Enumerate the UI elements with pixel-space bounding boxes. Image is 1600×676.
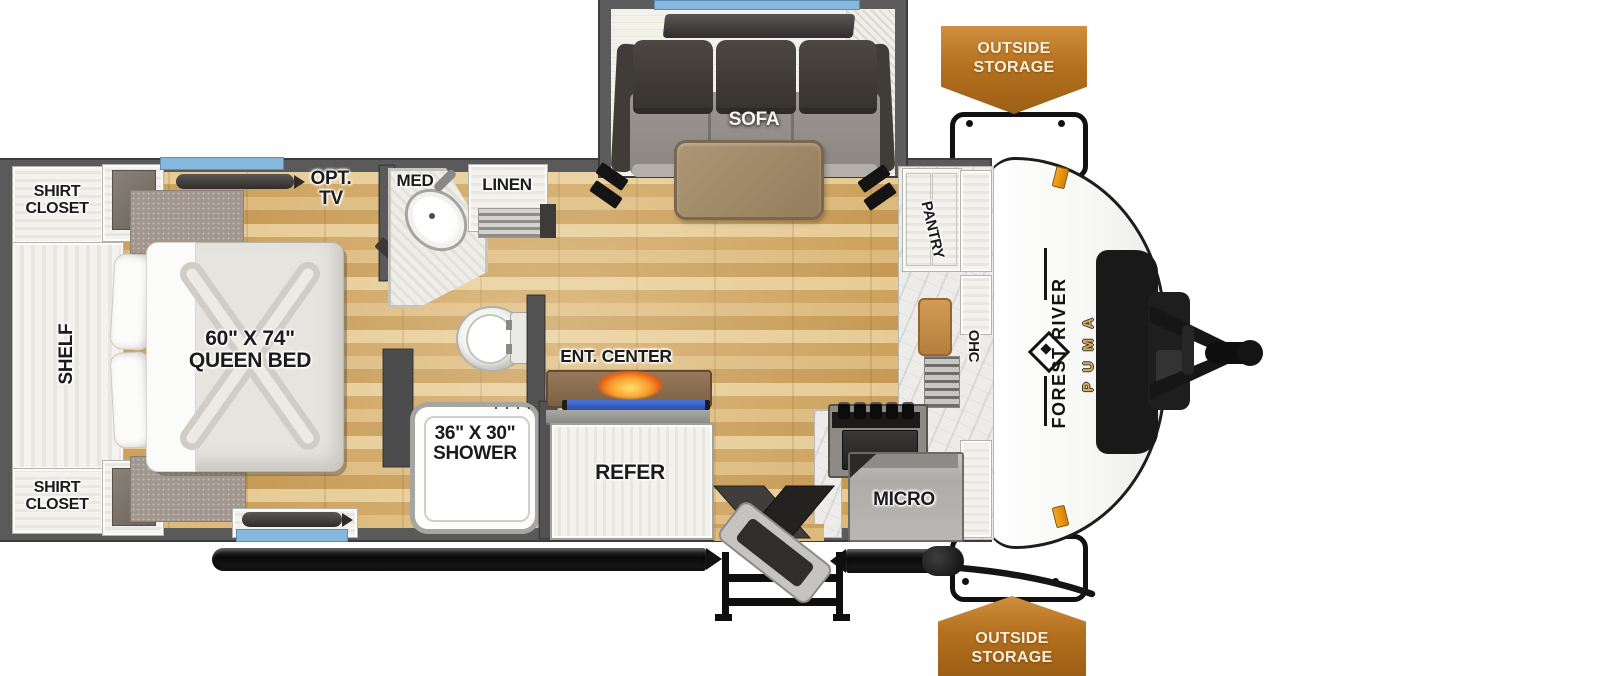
queen-bed-label: 60" X 74" QUEEN BED bbox=[158, 328, 342, 373]
brand-forest-river: FOREST RIVER bbox=[1049, 228, 1071, 478]
stove-burner-knob bbox=[870, 402, 882, 419]
shower-curtain-hooks bbox=[490, 402, 536, 414]
stove-burner-knob bbox=[838, 402, 850, 419]
sofa-back-cushion bbox=[799, 40, 877, 114]
tv-shelf bbox=[663, 14, 856, 38]
ent-center-tv bbox=[562, 400, 710, 410]
opt-tv-label: OPT. TV bbox=[296, 169, 366, 209]
stove-burner-knob bbox=[886, 402, 898, 419]
sofa-back-cushion bbox=[716, 40, 796, 114]
toilet-hinge bbox=[506, 320, 512, 330]
counter-vent bbox=[924, 356, 960, 408]
shower-label: 36" X 30" SHOWER bbox=[414, 424, 536, 464]
ohc-label: OHC bbox=[965, 314, 981, 378]
toilet-tank bbox=[510, 312, 530, 364]
shelf-label: SHELF bbox=[57, 289, 77, 419]
frame-bolt bbox=[966, 120, 973, 127]
frame-tongue-line bbox=[946, 556, 1106, 600]
entry-steps bbox=[698, 474, 858, 626]
outside-storage-badge-top-label: OUTSIDE STORAGE bbox=[941, 40, 1087, 78]
frame-bolt bbox=[1058, 120, 1065, 127]
hitch-assembly-icon bbox=[1130, 280, 1270, 420]
floorplan-canvas: FOREST RIVER PUMA SOFA SHIRT CLOSET SHEL… bbox=[0, 0, 1600, 676]
tv-bar-top bbox=[176, 174, 294, 189]
slideout-window bbox=[654, 0, 858, 8]
brand-divider-bottom bbox=[1044, 376, 1047, 426]
ohc-cabinet bbox=[960, 170, 992, 272]
tv-bar-bottom bbox=[242, 512, 342, 527]
stove-burner-knob bbox=[902, 402, 914, 419]
bedroom-window-top bbox=[160, 157, 284, 170]
bedroom-window-bottom bbox=[236, 529, 348, 542]
shirt-closet-bottom-label: SHIRT CLOSET bbox=[10, 480, 104, 514]
brand-divider-top bbox=[1044, 248, 1047, 300]
fireplace-flame bbox=[598, 371, 662, 399]
micro-label: MICRO bbox=[848, 490, 960, 510]
stove-burner-knob bbox=[854, 402, 866, 419]
refer-label: REFER bbox=[550, 462, 710, 484]
awning-rail-left bbox=[212, 548, 706, 571]
sink-drain bbox=[429, 213, 435, 219]
awning-rail-end-cap bbox=[922, 546, 964, 576]
dinette-table bbox=[674, 140, 824, 220]
ent-center-label: ENT. CENTER bbox=[552, 347, 680, 366]
linen-end-cap bbox=[540, 204, 556, 238]
sofa-back-cushion bbox=[633, 40, 713, 114]
ohc-cabinet bbox=[960, 440, 992, 538]
outside-storage-badge-bottom-label: OUTSIDE STORAGE bbox=[938, 630, 1086, 668]
med-label: MED bbox=[388, 172, 442, 190]
linen-label: LINEN bbox=[466, 176, 548, 194]
linen-vent bbox=[478, 208, 544, 238]
tv-bar-bottom-tip bbox=[342, 513, 353, 527]
cutting-board bbox=[918, 298, 952, 356]
shirt-closet-top-label: SHIRT CLOSET bbox=[10, 184, 104, 218]
toilet-hinge bbox=[506, 344, 512, 354]
bath-shower-wall bbox=[384, 350, 412, 466]
sofa-label: SOFA bbox=[694, 110, 814, 130]
